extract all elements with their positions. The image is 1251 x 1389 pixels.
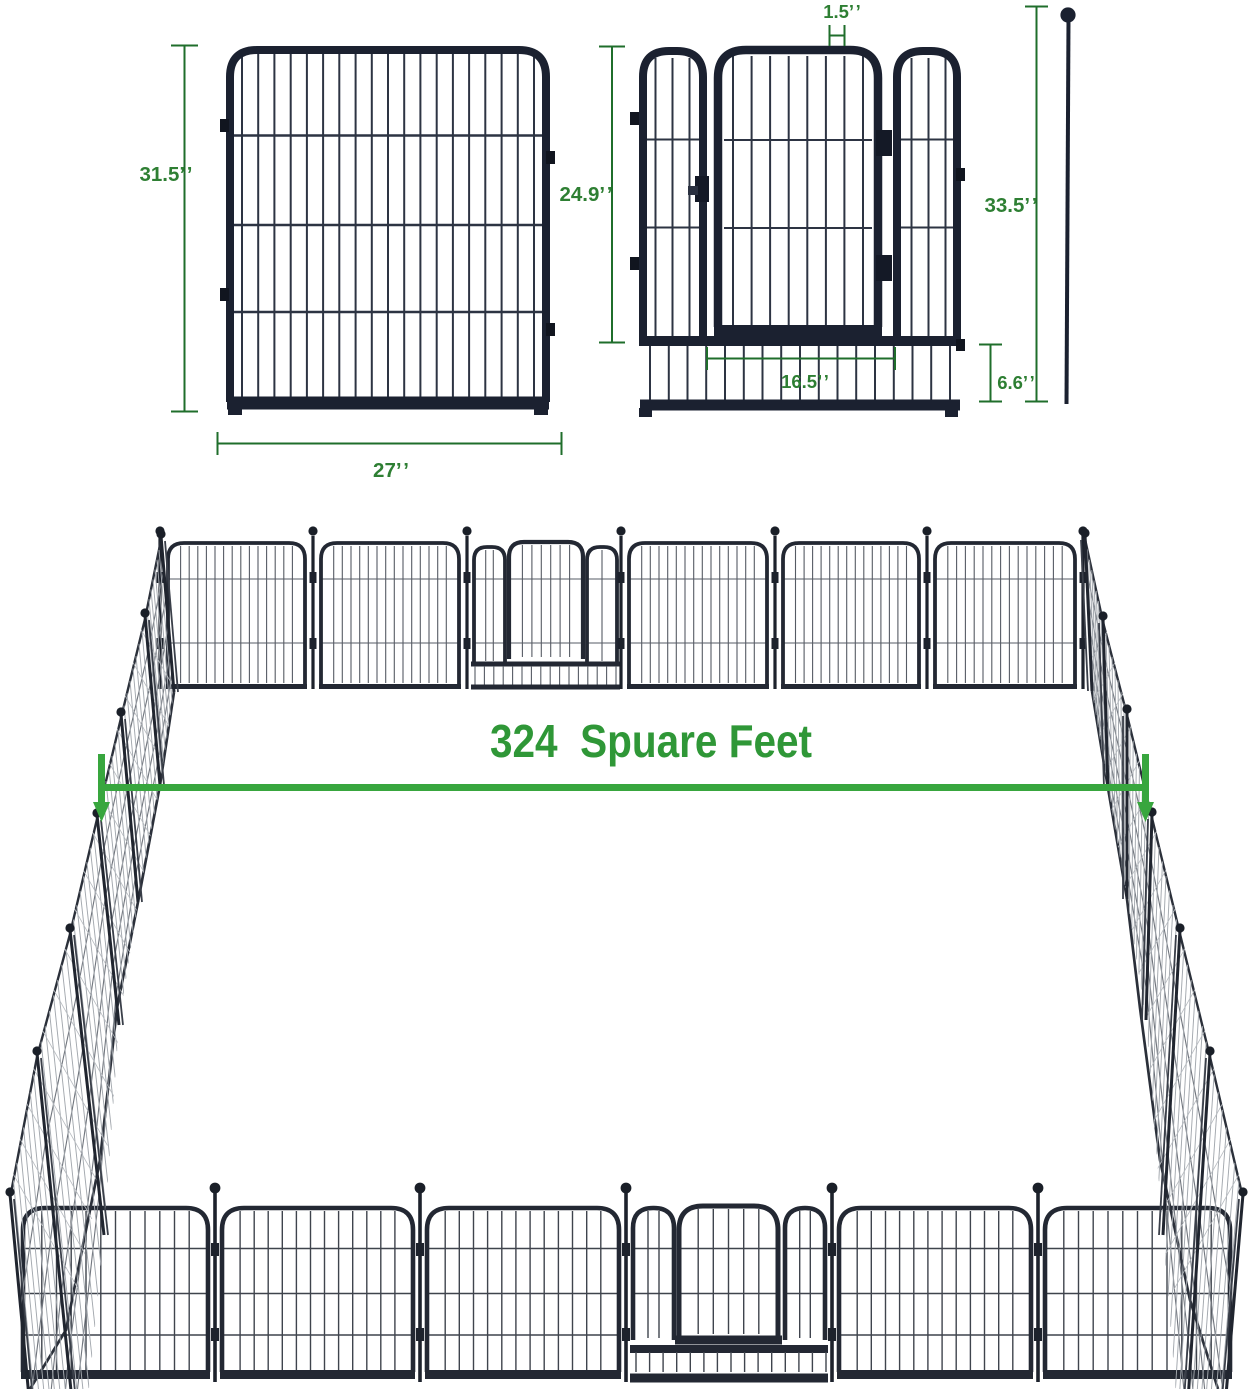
svg-text:33.5’ ’: 33.5’ ’ — [984, 194, 1037, 217]
svg-text:1.5’ ’: 1.5’ ’ — [823, 1, 861, 22]
svg-text:24.9’ ’: 24.9’ ’ — [559, 183, 612, 206]
svg-text:27’ ’: 27’ ’ — [373, 459, 409, 482]
svg-text:324 Spuare Feet: 324 Spuare Feet — [490, 715, 812, 767]
svg-text:6.6’ ’: 6.6’ ’ — [997, 372, 1035, 393]
svg-text:16.5’ ’: 16.5’ ’ — [781, 371, 829, 392]
svg-text:31.5’ ’: 31.5’ ’ — [139, 163, 192, 186]
